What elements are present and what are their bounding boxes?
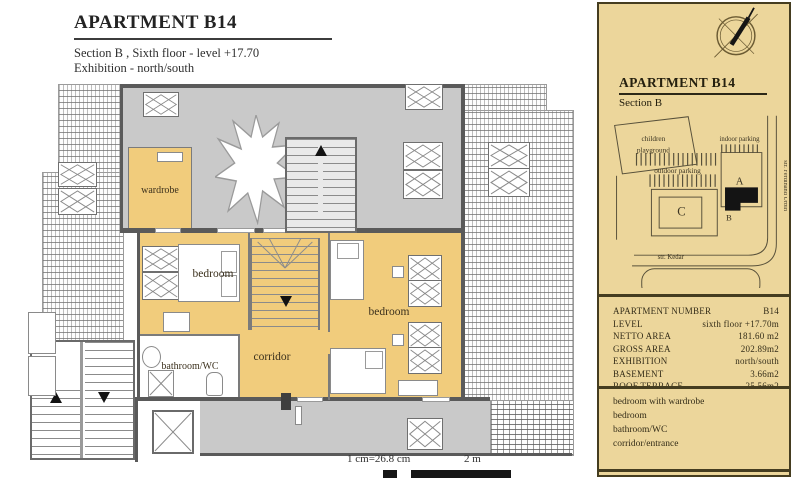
skylight xyxy=(58,188,97,215)
wall-stair-side xyxy=(135,400,138,462)
table-row: GROSS AREA202.89m2 xyxy=(613,343,779,356)
elevator xyxy=(152,410,194,454)
side-table xyxy=(392,266,404,278)
wall-right xyxy=(461,84,465,400)
balcony xyxy=(28,356,56,396)
roof-area-bottom xyxy=(200,400,490,455)
site-label-street-right: str. Ferdinand Urbih xyxy=(782,160,787,212)
table-row: APARTMENT NUMBERB14 xyxy=(613,305,779,318)
scale-ratio: 1 cm=26.8 cm xyxy=(347,453,410,465)
table-row: BASEMENT3.66m2 xyxy=(613,368,779,381)
stairs-down-arrow-icon xyxy=(280,296,292,307)
wall-left-upper xyxy=(120,84,123,232)
info-table: APARTMENT NUMBERB14 LEVELsixth floor +17… xyxy=(613,305,779,393)
window xyxy=(423,398,449,401)
bed xyxy=(330,348,386,394)
skylight xyxy=(488,142,530,169)
panel-divider xyxy=(599,294,789,297)
site-label-outdoor-parking: outdoor parking xyxy=(654,167,701,175)
armchair xyxy=(408,322,442,349)
panel-divider xyxy=(599,386,789,389)
wall-left-lower xyxy=(137,232,140,400)
skylight xyxy=(143,92,179,117)
toilet xyxy=(206,372,223,396)
floor-plan: wardrobe bedroom bedroom corridor bathro… xyxy=(28,84,590,462)
stairs-up-arrow-icon xyxy=(315,145,327,156)
site-label-building-c: C xyxy=(677,204,685,218)
entrance-door-leaf xyxy=(295,406,302,425)
list-item: bedroom xyxy=(613,409,779,423)
panel-title-block: APARTMENT B14 Section B xyxy=(619,74,779,109)
scale-length: 2 m xyxy=(464,453,481,465)
skylight xyxy=(58,162,97,187)
label-bedroom-right: bedroom xyxy=(354,306,424,318)
balcony xyxy=(28,312,56,354)
rooms-list: bedroom with wardrobe bedroom bathroom/W… xyxy=(613,395,779,451)
wardrobe-cabinet xyxy=(157,152,183,162)
stairs-upper xyxy=(285,137,357,233)
scale-bar xyxy=(411,470,511,478)
bed xyxy=(330,240,364,300)
dresser xyxy=(163,312,190,332)
skylight xyxy=(407,418,443,450)
list-item: bathroom/WC xyxy=(613,423,779,437)
label-wardrobe: wardrobe xyxy=(134,185,186,196)
label-corridor: corridor xyxy=(234,351,310,363)
panel-title: APARTMENT B14 xyxy=(619,75,767,95)
armchair xyxy=(408,255,442,282)
info-panel: APARTMENT B14 Section B children playgro… xyxy=(597,2,791,477)
page-title: APARTMENT B14 xyxy=(74,12,364,34)
title-block: APARTMENT B14 Section B , Sixth floor - … xyxy=(74,12,364,76)
page: { "title_block": { "title": "APARTMENT B… xyxy=(0,0,800,480)
skylight xyxy=(405,84,443,110)
title-subline-2: Exhibition - north/south xyxy=(74,61,364,76)
site-map: children playground indoor parking outdo… xyxy=(603,112,787,288)
window xyxy=(156,229,180,232)
site-label-building-a: A xyxy=(736,177,744,188)
stairs-down-arrow-icon xyxy=(98,392,110,403)
site-label-playground-2: playground xyxy=(637,147,670,155)
cabinet xyxy=(142,246,180,272)
skylight xyxy=(488,168,530,197)
skylight xyxy=(403,142,443,170)
label-bedroom-left: bedroom xyxy=(180,268,246,280)
panel-subtitle: Section B xyxy=(619,97,779,109)
site-label-indoor-parking: indoor parking xyxy=(720,136,761,143)
side-table xyxy=(392,334,404,346)
list-item: corridor/entrance xyxy=(613,437,779,451)
stairs-internal xyxy=(250,238,320,330)
title-underline xyxy=(74,38,332,40)
label-bathroom: bathroom/WC xyxy=(142,361,238,372)
site-label-street-bottom: str. Kedar xyxy=(658,254,685,261)
window xyxy=(298,398,322,401)
site-label-playground-1: children xyxy=(641,135,665,143)
compass-icon xyxy=(709,6,763,60)
table-row: NETTO AREA181.60 m2 xyxy=(613,330,779,343)
entrance-door-block xyxy=(281,393,291,410)
skylight xyxy=(403,170,443,199)
scale-bar-segment xyxy=(383,470,397,478)
table xyxy=(398,380,438,396)
table-row: LEVELsixth floor +17.70m xyxy=(613,318,779,331)
terrace-hatch-right-top xyxy=(463,84,547,113)
armchair xyxy=(408,347,442,374)
table-row: EXHIBITIONnorth/south xyxy=(613,355,779,368)
terrace-hatch-bottom xyxy=(490,400,574,456)
shower xyxy=(148,370,174,397)
cabinet xyxy=(142,272,180,300)
site-label-building-b: B xyxy=(726,212,732,222)
title-subline-1: Section B , Sixth floor - level +17.70 xyxy=(74,46,364,61)
panel-divider xyxy=(599,469,789,472)
list-item: bedroom with wardrobe xyxy=(613,395,779,409)
window xyxy=(218,229,254,232)
armchair xyxy=(408,280,442,307)
